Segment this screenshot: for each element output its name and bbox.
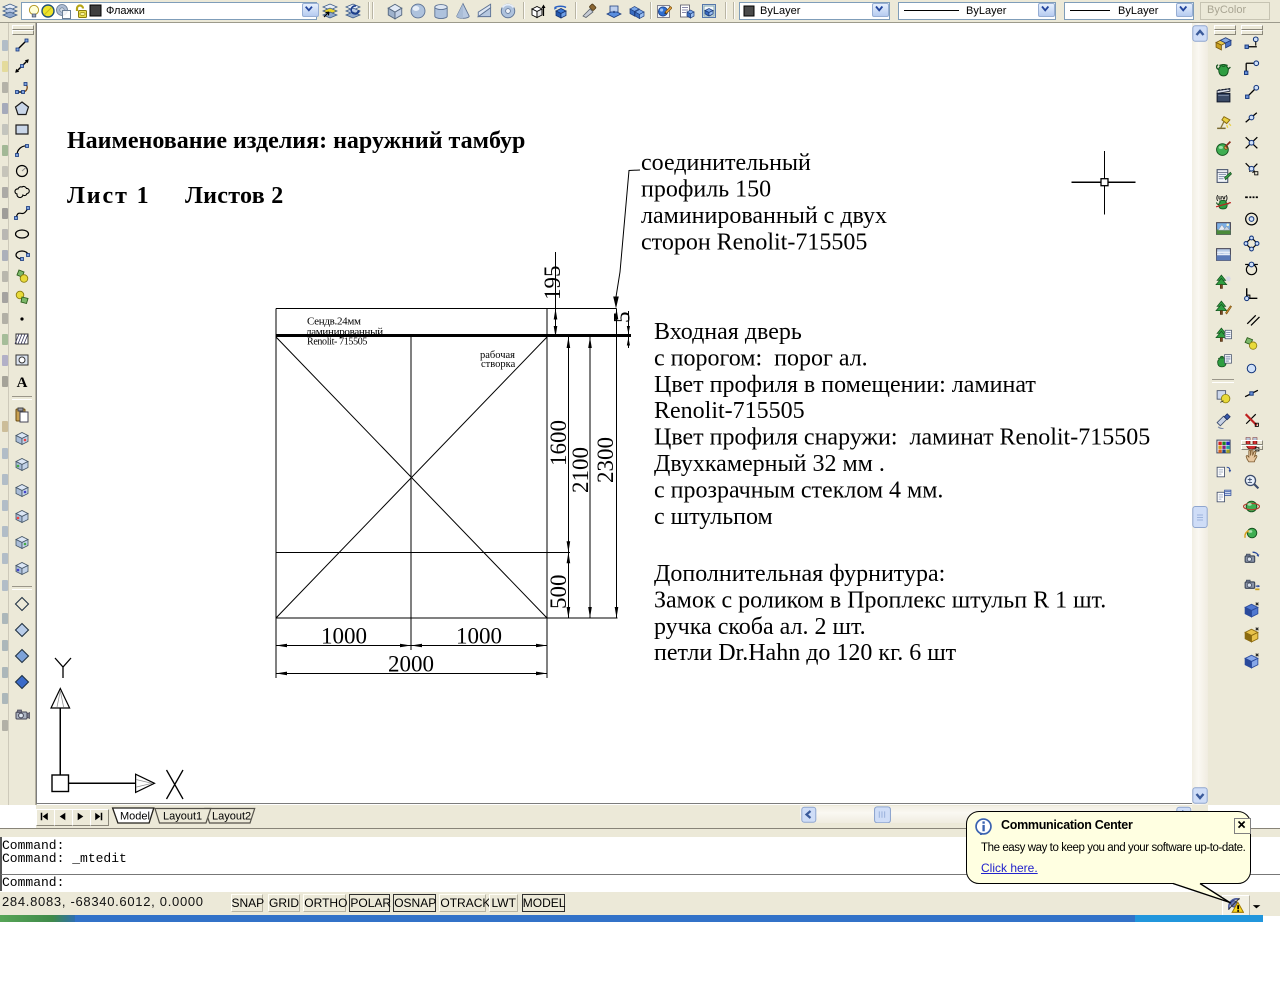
svg-text:2000: 2000 [388, 652, 434, 677]
svg-text:Листов 2: Листов 2 [185, 183, 284, 209]
svg-text:соединительный: соединительный [641, 150, 811, 176]
svg-text:ручка скоба ал. 2 шт.: ручка скоба ал. 2 шт. [654, 614, 866, 640]
svg-text:ламинированный с двух: ламинированный с двух [641, 203, 887, 229]
svg-text:петли Dr.Hahn до 120 кг. 6 шт: петли Dr.Hahn до 120 кг. 6 шт [654, 640, 957, 666]
svg-text:Двухкамерный 32 мм .: Двухкамерный 32 мм . [654, 451, 885, 477]
svg-text:1000: 1000 [321, 624, 367, 649]
svg-text:Дополнительная фурнитура:: Дополнительная фурнитура: [654, 561, 945, 587]
svg-text:A: A [17, 375, 28, 389]
svg-text:Renolit-715505: Renolit-715505 [654, 398, 805, 424]
svg-text:профиль 150: профиль 150 [641, 177, 771, 203]
svg-text:с штульпом: с штульпом [654, 504, 773, 530]
svg-text:Замок с роликом в Проплекс шту: Замок с роликом в Проплекс штульп R 1 шт… [654, 587, 1106, 613]
svg-text:Наименование изделия: наружний: Наименование изделия: наружний тамбур [67, 128, 525, 154]
svg-text:Лист 1: Лист 1 [67, 183, 151, 209]
svg-text:Renolit- 715505: Renolit- 715505 [307, 337, 367, 348]
svg-text:Layout2: Layout2 [212, 811, 251, 823]
svg-text:2100: 2100 [568, 447, 593, 493]
svg-text:Model: Model [120, 811, 150, 823]
svg-text:Layout1: Layout1 [163, 811, 202, 823]
svg-text:Цвет профиля снаружи: ламинат: Цвет профиля снаружи: ламинат Renolit-71… [654, 425, 1150, 451]
svg-text:195: 195 [540, 266, 565, 301]
svg-text:с порогом: порог ал.: с порогом: порог ал. [654, 345, 868, 371]
svg-text:Входная дверь: Входная дверь [654, 319, 802, 345]
svg-text:5: 5 [610, 312, 635, 324]
svg-text:Цвет профиля в помещении: лами: Цвет профиля в помещении: ламинат [654, 372, 1036, 398]
svg-text:створка: створка [481, 359, 516, 370]
svg-text:1000: 1000 [456, 624, 502, 649]
svg-text:с прозрачным стеклом 4 мм.: с прозрачным стеклом 4 мм. [654, 477, 943, 503]
svg-text:±: ± [1247, 475, 1252, 485]
svg-text:сторон Renolit-715505: сторон Renolit-715505 [641, 230, 867, 256]
svg-text:500: 500 [546, 575, 571, 610]
svg-text:2300: 2300 [593, 437, 618, 483]
